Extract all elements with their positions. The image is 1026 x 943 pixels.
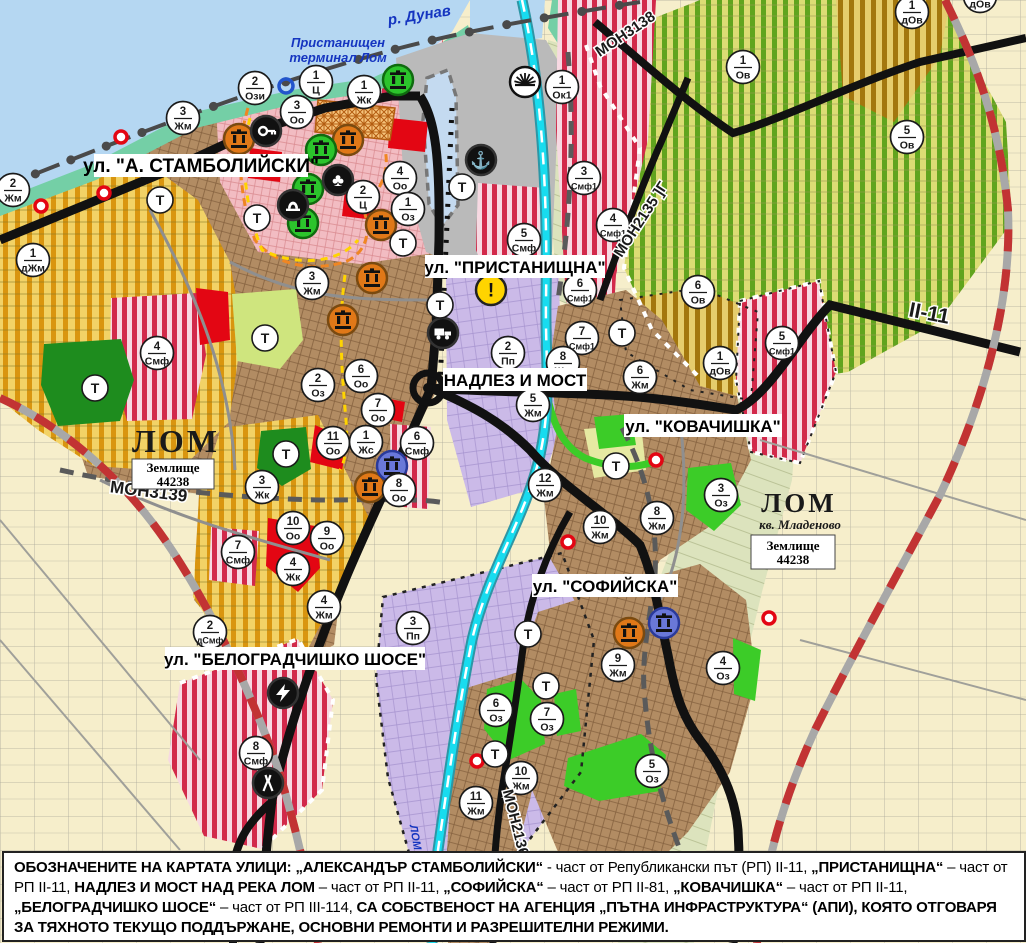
zone-marker: 3Жк <box>246 471 279 504</box>
svg-text:Т: Т <box>612 458 621 474</box>
svg-text:Оо: Оо <box>393 181 408 193</box>
zone-marker: 4Оз <box>707 652 740 685</box>
svg-text:Смф: Смф <box>244 756 268 768</box>
svg-text:Жк: Жк <box>254 490 270 502</box>
t-marker: Т <box>273 441 299 467</box>
svg-text:♣: ♣ <box>332 170 344 190</box>
street-label: ул. "КОВАЧИШКА" <box>624 414 782 437</box>
svg-text:Жм: Жм <box>608 668 626 680</box>
zone-marker: 3Оо <box>281 96 314 129</box>
svg-text:Т: Т <box>282 446 291 462</box>
t-marker: Т <box>533 673 559 699</box>
zone-marker: 2Ози <box>239 72 272 105</box>
t-marker: Т <box>515 621 541 647</box>
zone-marker: 7Оо <box>362 394 395 427</box>
svg-text:Т: Т <box>436 297 445 313</box>
red-dot-marker <box>115 131 127 143</box>
svg-text:ул. "ПРИСТАНИЩНА": ул. "ПРИСТАНИЩНА" <box>424 258 605 277</box>
t-marker: Т <box>390 230 416 256</box>
svg-text:2: 2 <box>10 178 16 190</box>
svg-text:11: 11 <box>470 791 483 803</box>
zone-marker: 10Оо <box>277 512 310 545</box>
zone-marker: 11Жм <box>460 787 493 820</box>
svg-text:6: 6 <box>695 280 701 292</box>
legend-street-name: „СОФИЙСКА“ <box>443 879 543 896</box>
zone-marker: 1дОв <box>896 0 929 29</box>
svg-text:Оо: Оо <box>371 413 386 425</box>
svg-text:Ов: Ов <box>691 295 706 307</box>
svg-text:5: 5 <box>779 331 786 343</box>
svg-text:1: 1 <box>559 75 566 87</box>
svg-text:10: 10 <box>515 766 528 778</box>
svg-text:ул. "СОФИЙСКА": ул. "СОФИЙСКА" <box>533 577 678 596</box>
svg-text:Жм: Жм <box>173 121 191 133</box>
monument-blue-icon <box>649 608 679 638</box>
svg-text:44238: 44238 <box>157 474 190 489</box>
svg-text:Оо: Оо <box>354 379 369 391</box>
zone-marker: 5Смф <box>508 224 541 257</box>
svg-text:1: 1 <box>361 80 368 92</box>
zone-marker: 1Оз <box>392 193 425 226</box>
svg-text:Жм: Жм <box>523 408 541 420</box>
zone-marker: 1Ц <box>300 66 333 99</box>
red-dot-marker <box>35 200 47 212</box>
svg-text:Смф1: Смф1 <box>769 347 795 357</box>
svg-text:дЖм: дЖм <box>21 263 45 275</box>
zone-marker: 3Жм <box>296 267 329 300</box>
svg-text:Жк: Жк <box>285 572 301 584</box>
legend-street-name: „КОВАЧИШКА“ <box>673 879 783 896</box>
legend-text: – част от РП III-114, <box>216 899 357 916</box>
map-screenshot: ♣⚓! 2Жм3Жм2Ози1Ц1Жк3Оо4Оо2Ц1Оз1Ок13Смф14… <box>0 0 1026 943</box>
zone-marker: 8Оо <box>383 474 416 507</box>
svg-text:Оз: Оз <box>311 388 324 400</box>
svg-text:9: 9 <box>324 526 330 538</box>
key-icon <box>251 116 281 146</box>
place-label-mladenovo: кв. Младеново <box>759 517 841 532</box>
legend-street-name: „БЕЛОГРАДЧИШКО ШОСЕ“ <box>14 899 216 916</box>
svg-text:Жк: Жк <box>356 95 372 107</box>
monument-orange-icon <box>357 263 387 293</box>
arch-icon <box>278 190 308 220</box>
svg-text:8: 8 <box>253 741 260 753</box>
zone-marker: 2Оз <box>302 369 335 402</box>
t-marker: Т <box>427 292 453 318</box>
svg-text:⚓: ⚓ <box>470 150 491 170</box>
svg-text:Жм: Жм <box>302 286 320 298</box>
anchor-icon: ⚓ <box>466 145 496 175</box>
svg-text:Оо: Оо <box>286 531 301 543</box>
svg-text:ул. "А. СТАМБОЛИЙСКИ": ул. "А. СТАМБОЛИЙСКИ" <box>83 155 319 177</box>
t-marker: Т <box>482 741 508 767</box>
zone-marker: 9Оо <box>311 522 344 555</box>
svg-text:1: 1 <box>405 197 412 209</box>
zone-marker: 4Смф <box>141 337 174 370</box>
legend-text: – част от РП II-81, <box>544 879 674 896</box>
svg-text:4: 4 <box>610 213 617 225</box>
svg-text:Т: Т <box>542 678 551 694</box>
zone-marker: 3Жм <box>167 102 200 135</box>
red-dot-marker <box>562 536 574 548</box>
svg-text:Смф: Смф <box>226 555 250 567</box>
zone-marker: 3Смф1 <box>568 162 601 195</box>
svg-text:Т: Т <box>458 179 467 195</box>
zone-marker: 6Смф1 <box>564 274 597 307</box>
svg-text:дОв: дОв <box>969 0 991 11</box>
svg-text:Т: Т <box>491 746 500 762</box>
svg-text:1: 1 <box>313 70 320 82</box>
svg-text:5: 5 <box>904 125 911 137</box>
svg-text:8: 8 <box>560 351 567 363</box>
svg-text:1: 1 <box>717 351 724 363</box>
street-label: ул. "БЕЛОГРАДЧИШКО ШОСЕ" <box>164 647 426 670</box>
svg-text:Землище: Землище <box>146 460 199 475</box>
svg-text:5: 5 <box>649 759 656 771</box>
svg-text:2: 2 <box>252 76 258 88</box>
zone-marker: 1Ов <box>727 51 760 84</box>
svg-text:3: 3 <box>410 616 416 628</box>
svg-text:11: 11 <box>327 431 340 443</box>
svg-text:6: 6 <box>358 364 364 376</box>
zone-marker: 6Жм <box>624 361 657 394</box>
zone-marker: 7Оз <box>531 703 564 736</box>
zone-marker: 1Жс <box>350 426 383 459</box>
svg-text:3: 3 <box>259 475 265 487</box>
place-label-lom: ЛОМ <box>761 488 837 518</box>
svg-text:Жм: Жм <box>3 193 21 205</box>
zone-marker: 2Ц <box>347 181 380 214</box>
svg-text:2: 2 <box>505 341 511 353</box>
svg-text:3: 3 <box>718 483 724 495</box>
svg-text:4: 4 <box>397 166 404 178</box>
zone-marker: 9Жм <box>602 649 635 682</box>
svg-text:Оо: Оо <box>326 446 341 458</box>
zone-marker: 5Оз <box>636 755 669 788</box>
svg-text:Ов: Ов <box>736 70 751 82</box>
street-label: ул. "А. СТАМБОЛИЙСКИ" <box>83 154 319 177</box>
map-canvas: ♣⚓! 2Жм3Жм2Ози1Ц1Жк3Оо4Оо2Ц1Оз1Ок13Смф14… <box>0 0 1026 943</box>
svg-text:44238: 44238 <box>777 552 810 567</box>
svg-text:8: 8 <box>654 506 661 518</box>
svg-text:!: ! <box>488 281 494 302</box>
svg-text:6: 6 <box>493 698 499 710</box>
zone-marker: 6Оз <box>480 694 513 727</box>
red-dot-marker <box>650 454 662 466</box>
zone-marker: 2дСмф <box>194 616 227 649</box>
svg-text:Смф: Смф <box>405 446 429 458</box>
svg-text:1: 1 <box>363 430 370 442</box>
legend-street-name: НАДЛЕЗ И МОСТ НАД РЕКА ЛОМ <box>74 879 315 896</box>
place-label-lom: ЛОМ <box>132 423 220 459</box>
red-dot-marker <box>471 755 483 767</box>
svg-text:дОв: дОв <box>901 15 923 27</box>
t-marker: Т <box>82 375 108 401</box>
zone-marker: 8Жм <box>641 502 674 535</box>
zone-marker: 4Оо <box>384 162 417 195</box>
zone-marker: 11Оо <box>317 427 350 460</box>
svg-text:1: 1 <box>30 248 37 260</box>
svg-text:Жм: Жм <box>647 521 665 533</box>
zone-marker: 6Ов <box>682 276 715 309</box>
zone-marker: 12Жм <box>529 469 562 502</box>
svg-text:Оо: Оо <box>320 541 335 553</box>
svg-text:7: 7 <box>544 707 550 719</box>
t-marker: Т <box>449 174 475 200</box>
svg-text:1: 1 <box>740 55 747 67</box>
sun-icon <box>510 67 540 97</box>
zone-marker: 1Жк <box>348 76 381 109</box>
zone-marker: 3Оз <box>705 479 738 512</box>
zemlishte-label: Землище44238 <box>751 535 835 569</box>
svg-text:5: 5 <box>530 393 537 405</box>
road-fork-icon <box>253 768 283 798</box>
svg-text:ул. "КОВАЧИШКА": ул. "КОВАЧИШКА" <box>625 417 781 436</box>
t-marker: Т <box>147 187 173 213</box>
zone-marker: 7Смф <box>222 536 255 569</box>
svg-text:7: 7 <box>579 326 585 338</box>
svg-text:Т: Т <box>156 192 165 208</box>
svg-text:Оз: Оз <box>714 498 727 510</box>
svg-text:3: 3 <box>581 166 587 178</box>
svg-text:3: 3 <box>309 271 315 283</box>
svg-text:Ок1: Ок1 <box>552 90 571 102</box>
zone-marker: 1дОв <box>704 347 737 380</box>
svg-text:2: 2 <box>315 373 321 385</box>
street-label: ул. "ПРИСТАНИЩНА" <box>424 255 605 278</box>
svg-text:Смф: Смф <box>512 243 536 255</box>
svg-text:10: 10 <box>594 515 607 527</box>
t-marker: Т <box>609 320 635 346</box>
svg-text:Смф: Смф <box>145 356 169 368</box>
svg-text:6: 6 <box>577 278 583 290</box>
svg-text:2: 2 <box>207 620 213 632</box>
svg-text:Пп: Пп <box>501 356 515 368</box>
zone-marker: 2Жм <box>0 174 30 207</box>
t-marker: Т <box>252 325 278 351</box>
warning-icon: ! <box>476 275 506 305</box>
svg-text:Ов: Ов <box>900 140 915 152</box>
zone-marker: 3Пп <box>397 612 430 645</box>
svg-text:5: 5 <box>521 228 528 240</box>
svg-text:3: 3 <box>180 106 186 118</box>
svg-text:Оз: Оз <box>716 671 729 683</box>
monument-orange-icon <box>614 618 644 648</box>
zone-marker: 10Жм <box>584 511 617 544</box>
zone-marker: 4Жм <box>308 591 341 624</box>
legend-text-panel: ОБОЗНАЧЕНИТЕ НА КАРТАТА УЛИЦИ: „АЛЕКСАНД… <box>2 851 1026 942</box>
zone-marker: 6Смф <box>401 427 434 460</box>
red-zone <box>388 118 428 152</box>
svg-text:Оз: Оз <box>540 722 553 734</box>
svg-text:Ози: Ози <box>245 91 265 103</box>
svg-text:2: 2 <box>360 185 366 197</box>
svg-text:6: 6 <box>414 431 420 443</box>
svg-text:Ц: Ц <box>359 200 367 212</box>
svg-text:4: 4 <box>154 341 161 353</box>
legend-street-name: ОБОЗНАЧЕНИТЕ НА КАРТАТА УЛИЦИ: „АЛЕКСАНД… <box>14 859 543 876</box>
svg-text:Т: Т <box>399 235 408 251</box>
zone-marker: 8Смф <box>240 737 273 770</box>
zemlishte-label: Землище44238 <box>132 459 214 489</box>
svg-text:Пп: Пп <box>406 631 420 643</box>
svg-text:7: 7 <box>375 398 381 410</box>
legend-text: - част от Републикански път (РП) II-11, <box>543 859 811 876</box>
legend-text: – част от РП II-11, <box>315 879 443 896</box>
t-marker: Т <box>244 205 270 231</box>
truck-icon <box>428 318 458 348</box>
zone-marker: 1дЖм <box>17 244 50 277</box>
svg-text:Землище: Землище <box>766 538 819 553</box>
zone-marker: 2Пп <box>492 337 525 370</box>
svg-text:Т: Т <box>524 626 533 642</box>
svg-text:Жм: Жм <box>314 610 332 622</box>
svg-text:4: 4 <box>720 656 727 668</box>
red-dot-marker <box>98 187 110 199</box>
svg-text:дСмф: дСмф <box>197 636 224 646</box>
red-dot-marker <box>763 612 775 624</box>
svg-text:Оо: Оо <box>392 493 407 505</box>
svg-text:Оз: Оз <box>645 774 658 786</box>
svg-text:Жс: Жс <box>357 445 373 457</box>
street-label: ул. "СОФИЙСКА" <box>532 574 678 597</box>
svg-text:9: 9 <box>615 653 621 665</box>
svg-text:НАДЛЕЗ И МОСТ: НАДЛЕЗ И МОСТ <box>444 371 587 390</box>
monument-orange-icon <box>224 124 254 154</box>
t-marker: Т <box>603 453 629 479</box>
monument-green-icon <box>383 65 413 95</box>
zone-marker: 6Оо <box>345 360 378 393</box>
legend-street-name: „ПРИСТАНИЩНА“ <box>811 859 943 876</box>
svg-text:6: 6 <box>637 365 643 377</box>
svg-text:ул. "БЕЛОГРАДЧИШКО ШОСЕ": ул. "БЕЛОГРАДЧИШКО ШОСЕ" <box>164 650 426 669</box>
svg-text:Т: Т <box>261 330 270 346</box>
legend-text: – част от РП II-11, <box>783 879 907 896</box>
svg-text:Жм: Жм <box>630 380 648 392</box>
svg-text:1: 1 <box>909 0 916 12</box>
zone-marker: 5Смф1 <box>766 327 799 360</box>
water-label: терминал Лом <box>289 50 387 65</box>
svg-text:3: 3 <box>294 100 300 112</box>
svg-text:Оо: Оо <box>290 115 305 127</box>
lightning-icon <box>268 678 298 708</box>
zone-marker: 1Ок1 <box>546 71 579 104</box>
svg-text:4: 4 <box>290 557 297 569</box>
svg-text:Оз: Оз <box>401 212 414 224</box>
svg-text:Смф1: Смф1 <box>571 182 597 192</box>
svg-text:дОв: дОв <box>709 366 731 378</box>
svg-text:10: 10 <box>287 516 300 528</box>
water-label: Пристанищен <box>291 35 385 50</box>
monument-orange-icon <box>328 305 358 335</box>
svg-text:Жм: Жм <box>535 488 553 500</box>
svg-text:12: 12 <box>539 473 552 485</box>
zone-marker: 5Ов <box>891 121 924 154</box>
svg-text:Жм: Жм <box>466 806 484 818</box>
svg-text:4: 4 <box>321 595 328 607</box>
svg-text:Т: Т <box>91 380 100 396</box>
monument-orange-icon <box>333 125 363 155</box>
svg-text:Т: Т <box>618 325 627 341</box>
svg-text:Смф1: Смф1 <box>567 294 593 304</box>
svg-text:Ц: Ц <box>312 85 320 97</box>
zone-marker: 4Жк <box>277 553 310 586</box>
svg-text:8: 8 <box>396 478 403 490</box>
svg-text:Оз: Оз <box>489 713 502 725</box>
svg-text:Жм: Жм <box>590 530 608 542</box>
svg-text:7: 7 <box>235 540 241 552</box>
zone-marker: 5Жм <box>517 389 550 422</box>
svg-text:Т: Т <box>253 210 262 226</box>
street-label: НАДЛЕЗ И МОСТ <box>443 368 587 391</box>
